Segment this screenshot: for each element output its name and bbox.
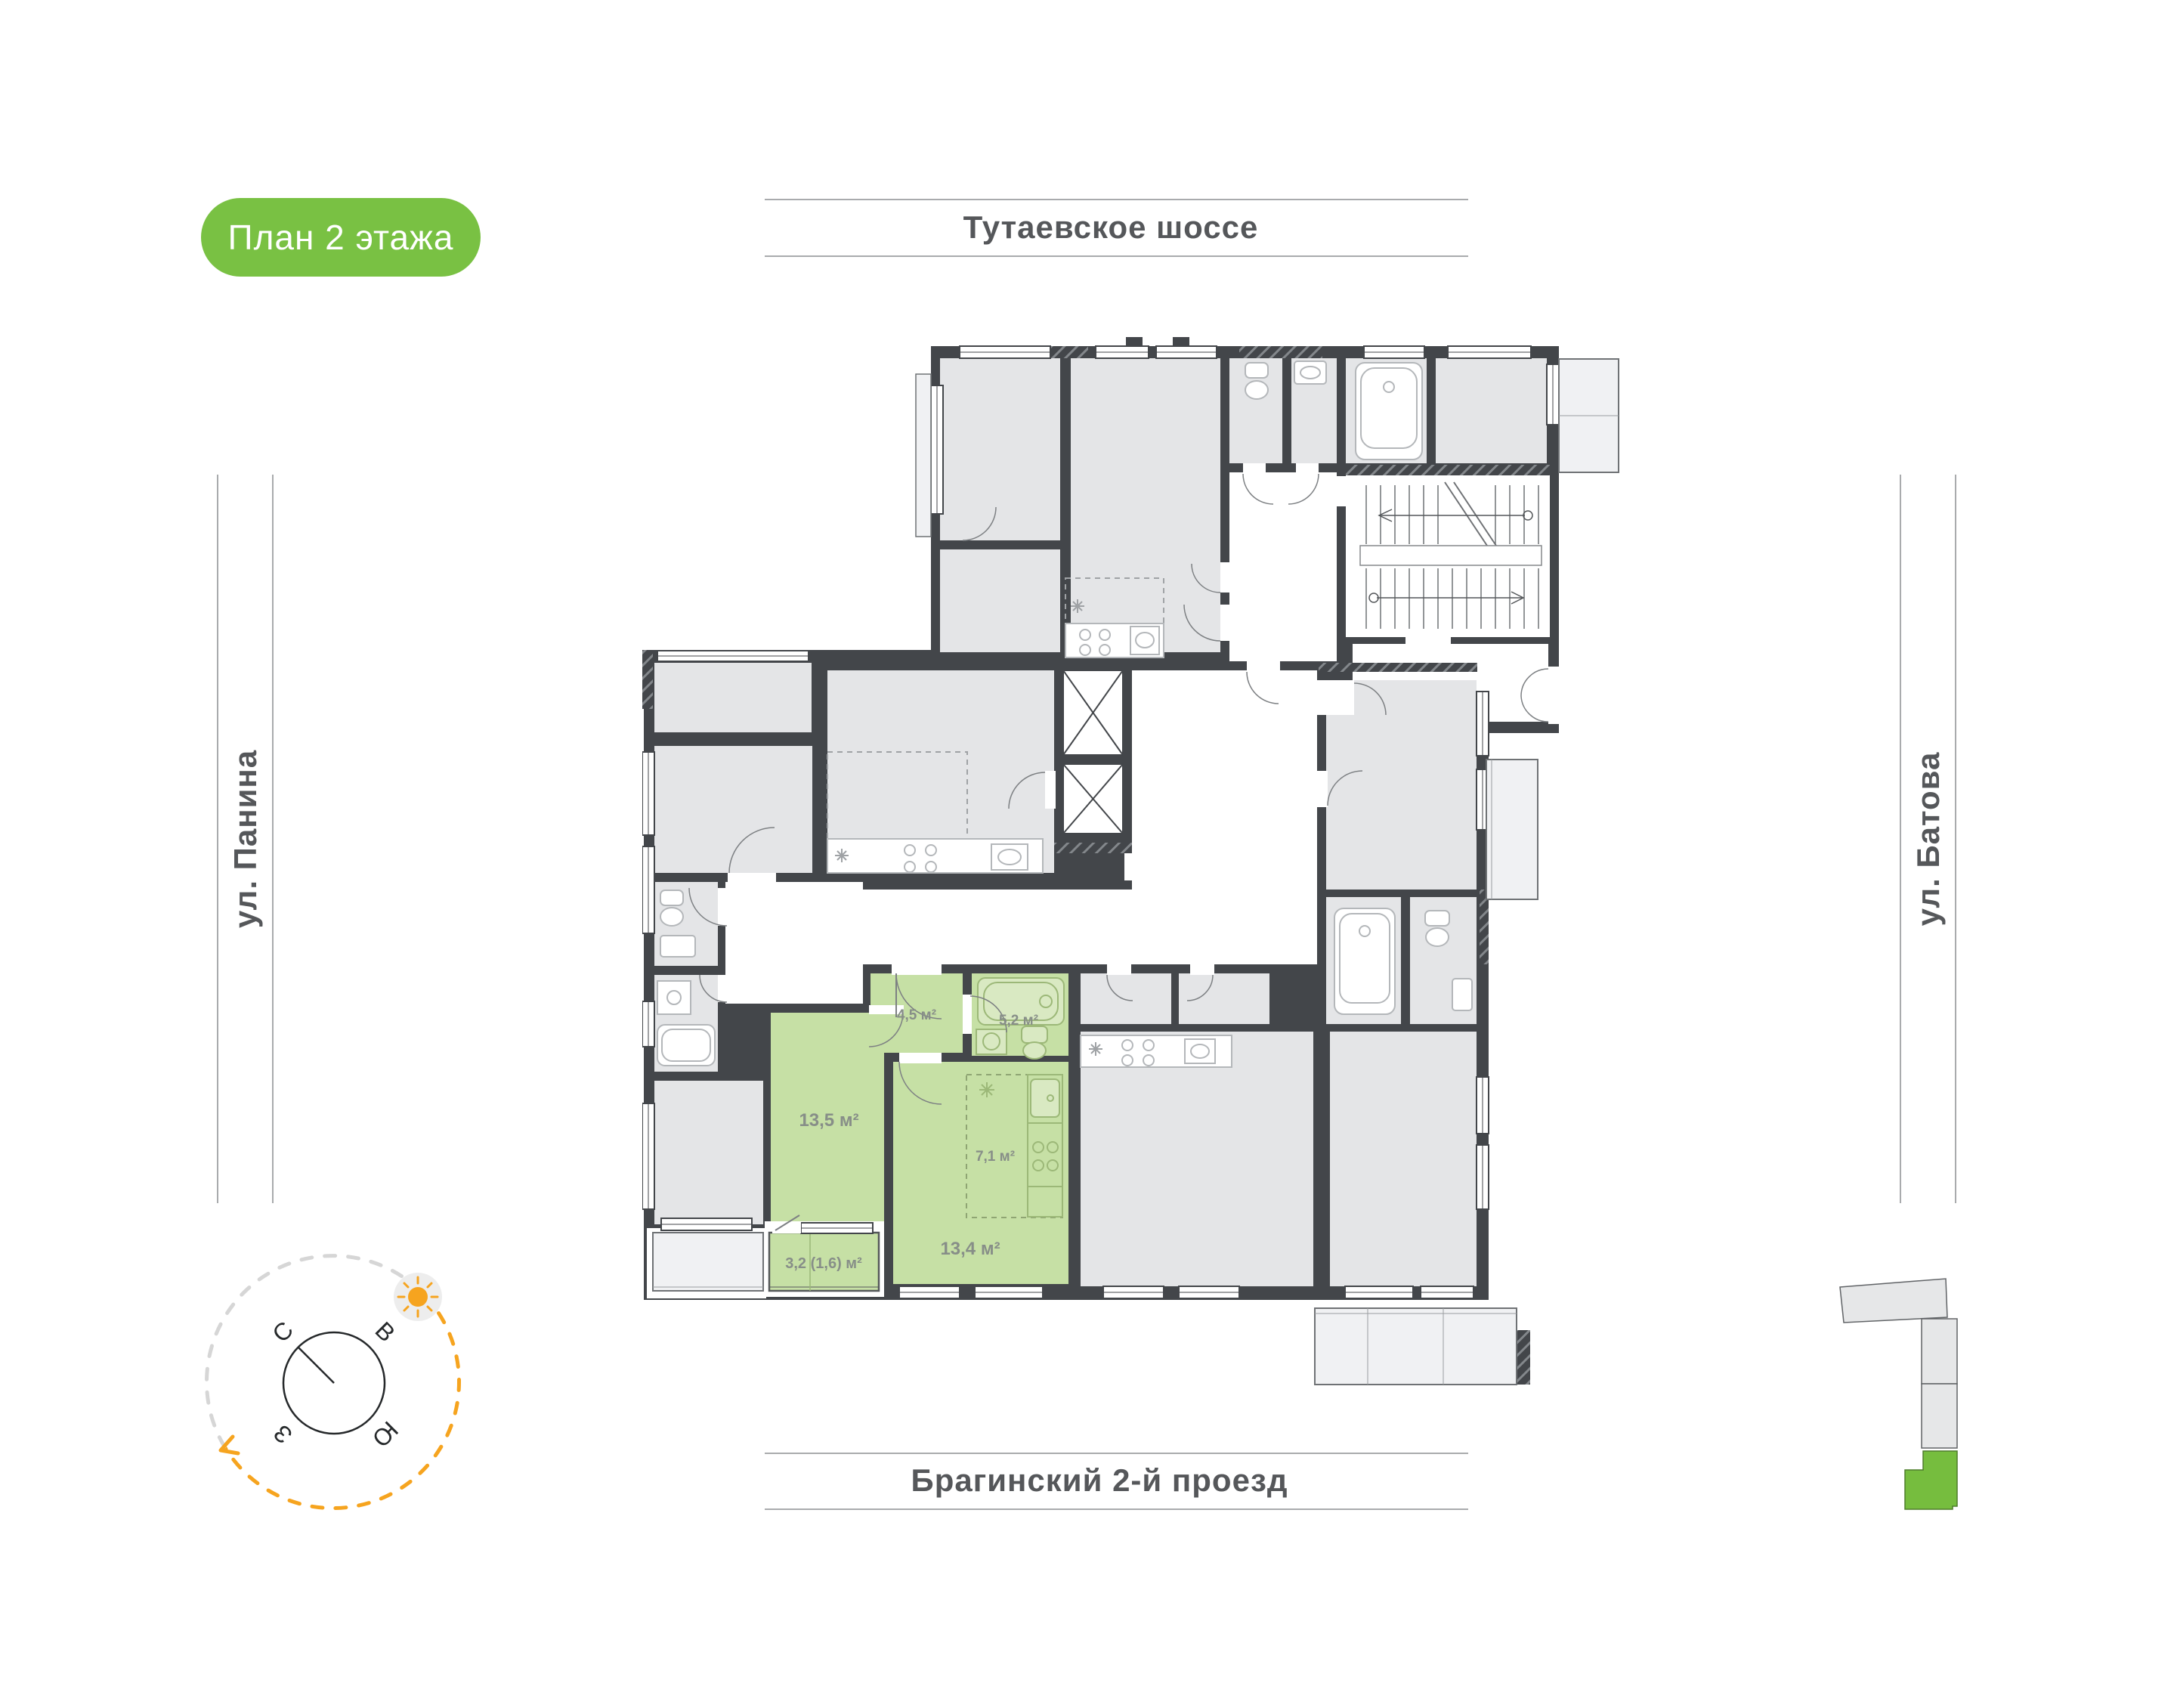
street-label-left: ул. Панина bbox=[227, 750, 264, 928]
compass-arrow-icon bbox=[221, 1437, 238, 1453]
street-label-right: ул. Батова bbox=[1910, 752, 1947, 927]
room-area-label: 3,2 (1,6) м² bbox=[785, 1255, 862, 1272]
street-line-top-2 bbox=[765, 255, 1468, 257]
floor-plan-page: План 2 этажа Тутаевское шоссе Брагинский… bbox=[0, 0, 2177, 1708]
floor-badge-label: План 2 этажа bbox=[228, 217, 454, 258]
room-area-label: 13,4 м² bbox=[940, 1239, 1000, 1259]
street-line-bottom-1 bbox=[765, 1453, 1468, 1454]
street-line-right-2 bbox=[1955, 475, 1956, 1203]
street-label-top: Тутаевское шоссе bbox=[963, 209, 1259, 246]
compass-south: Ю bbox=[367, 1416, 404, 1453]
compass-north: С bbox=[267, 1316, 298, 1348]
room-area-label: 4,5 м² bbox=[897, 1007, 936, 1023]
room-area-label: 7,1 м² bbox=[976, 1149, 1015, 1165]
minimap-section bbox=[1922, 1319, 1957, 1384]
minimap-section bbox=[1840, 1279, 1947, 1323]
floor-plan: 4,5 м² 5,2 м² 7,1 м² 13,5 м² 13,4 м² 3,2… bbox=[642, 317, 1625, 1391]
room-area-label: 5,2 м² bbox=[999, 1013, 1038, 1029]
compass-rose-icon: С В З Ю bbox=[204, 1232, 465, 1542]
street-line-left-1 bbox=[217, 475, 218, 1203]
elevator-icon bbox=[1063, 670, 1123, 834]
sun-icon bbox=[394, 1273, 442, 1321]
street-line-right-1 bbox=[1900, 475, 1901, 1203]
room-area-label: 13,5 м² bbox=[799, 1110, 858, 1131]
floor-badge: План 2 этажа bbox=[201, 198, 481, 277]
minimap-active-section[interactable] bbox=[1905, 1451, 1957, 1509]
building-minimap bbox=[1789, 1245, 2016, 1548]
compass-west: З bbox=[268, 1419, 298, 1449]
elevator-shafts bbox=[1054, 661, 1132, 843]
compass-east: В bbox=[370, 1317, 401, 1348]
street-line-left-2 bbox=[272, 475, 274, 1203]
minimap-section bbox=[1922, 1384, 1957, 1448]
street-line-bottom-2 bbox=[765, 1508, 1468, 1510]
street-label-bottom: Брагинский 2-й проезд bbox=[911, 1462, 1288, 1499]
street-line-top-1 bbox=[765, 199, 1468, 200]
